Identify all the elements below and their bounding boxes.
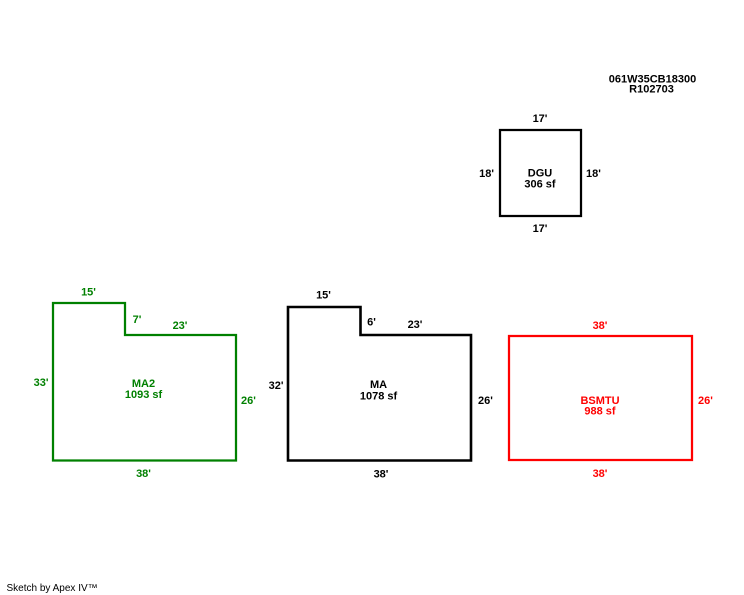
svg-text:17': 17'	[533, 113, 548, 125]
svg-text:988 sf: 988 sf	[584, 406, 616, 418]
svg-text:23': 23'	[408, 319, 423, 331]
svg-text:MA: MA	[370, 379, 387, 391]
svg-text:7': 7'	[133, 314, 142, 326]
svg-text:38': 38'	[593, 320, 608, 332]
svg-text:38': 38'	[593, 468, 608, 480]
svg-text:15': 15'	[316, 290, 331, 302]
svg-text:15': 15'	[81, 287, 96, 299]
svg-text:18': 18'	[586, 168, 601, 180]
svg-text:Sketch by Apex IV™: Sketch by Apex IV™	[7, 583, 98, 594]
svg-text:1093 sf: 1093 sf	[125, 389, 163, 401]
svg-text:18': 18'	[479, 168, 494, 180]
svg-text:33': 33'	[34, 377, 49, 389]
svg-text:R102703: R102703	[629, 84, 674, 96]
svg-text:17': 17'	[533, 223, 548, 235]
svg-text:26': 26'	[478, 395, 493, 407]
svg-text:26': 26'	[698, 395, 713, 407]
svg-text:306 sf: 306 sf	[524, 179, 556, 191]
svg-text:1078 sf: 1078 sf	[360, 391, 398, 403]
svg-text:38': 38'	[136, 468, 151, 480]
svg-text:23': 23'	[173, 320, 188, 332]
svg-text:6': 6'	[367, 317, 376, 329]
svg-text:32': 32'	[269, 380, 284, 392]
svg-text:38': 38'	[374, 469, 389, 481]
svg-text:26': 26'	[241, 395, 256, 407]
